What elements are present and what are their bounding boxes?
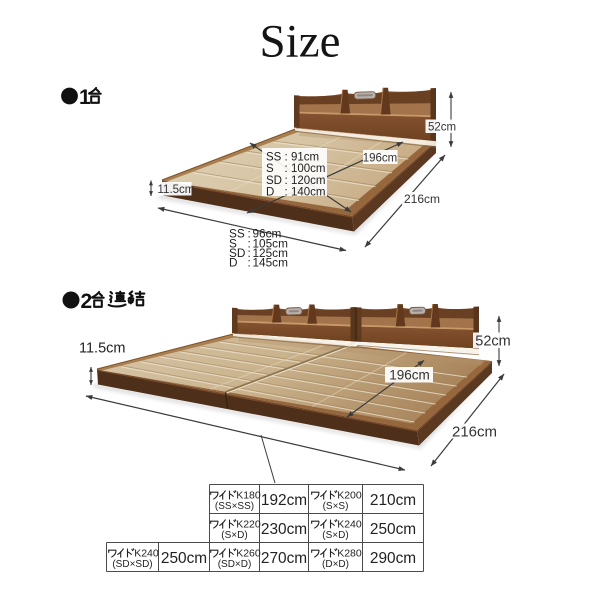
svg-text:K260: K260 (236, 547, 261, 559)
svg-text:2: 2 (81, 290, 93, 313)
svg-text:11.5cm: 11.5cm (79, 341, 125, 357)
svg-text:100cm: 100cm (291, 163, 326, 175)
svg-text:K200: K200 (337, 489, 362, 501)
svg-text::: : (248, 256, 251, 270)
svg-text:D: D (266, 187, 274, 199)
svg-text:(SS×SS): (SS×SS) (215, 501, 254, 512)
svg-text:K240: K240 (134, 547, 159, 559)
svg-text:192cm: 192cm (261, 492, 307, 509)
svg-text:K280: K280 (337, 547, 362, 559)
svg-text::: : (285, 163, 288, 175)
svg-text:270cm: 270cm (261, 550, 307, 567)
svg-text:K180: K180 (236, 489, 261, 501)
svg-text:196cm: 196cm (363, 152, 398, 164)
svg-text:K220: K220 (236, 518, 261, 530)
svg-text:216cm: 216cm (452, 424, 497, 441)
svg-text:250cm: 250cm (370, 521, 416, 538)
svg-text:11.5cm: 11.5cm (158, 184, 195, 196)
svg-text:(S×D): (S×D) (322, 530, 348, 541)
svg-text:196cm: 196cm (389, 368, 430, 383)
svg-text:140cm: 140cm (291, 187, 326, 199)
svg-text:52cm: 52cm (475, 333, 510, 349)
svg-text:(SD×D): (SD×D) (218, 559, 252, 570)
svg-text:(SD×SD): (SD×SD) (112, 559, 152, 570)
svg-text:S: S (266, 163, 274, 175)
svg-text:91cm: 91cm (291, 152, 319, 164)
svg-text:230cm: 230cm (261, 521, 307, 538)
svg-text::: : (285, 187, 288, 199)
svg-text:SS: SS (266, 152, 282, 164)
svg-text::: : (285, 152, 288, 164)
svg-text:1: 1 (79, 86, 91, 109)
svg-text:216cm: 216cm (404, 192, 440, 206)
svg-text:Size: Size (260, 16, 341, 68)
svg-text:290cm: 290cm (370, 550, 416, 567)
svg-text:(D×D): (D×D) (322, 559, 349, 570)
svg-text:210cm: 210cm (370, 492, 416, 509)
svg-text:120cm: 120cm (291, 175, 326, 187)
svg-text:D: D (229, 256, 238, 270)
svg-text:SD: SD (266, 175, 282, 187)
svg-text:250cm: 250cm (161, 550, 207, 567)
svg-text::: : (285, 175, 288, 187)
svg-text:145cm: 145cm (253, 256, 289, 270)
svg-text:K240: K240 (337, 518, 362, 530)
svg-text:52cm: 52cm (428, 121, 456, 133)
svg-text:(S×S): (S×S) (323, 501, 349, 512)
svg-text:(S×D): (S×D) (221, 530, 247, 541)
